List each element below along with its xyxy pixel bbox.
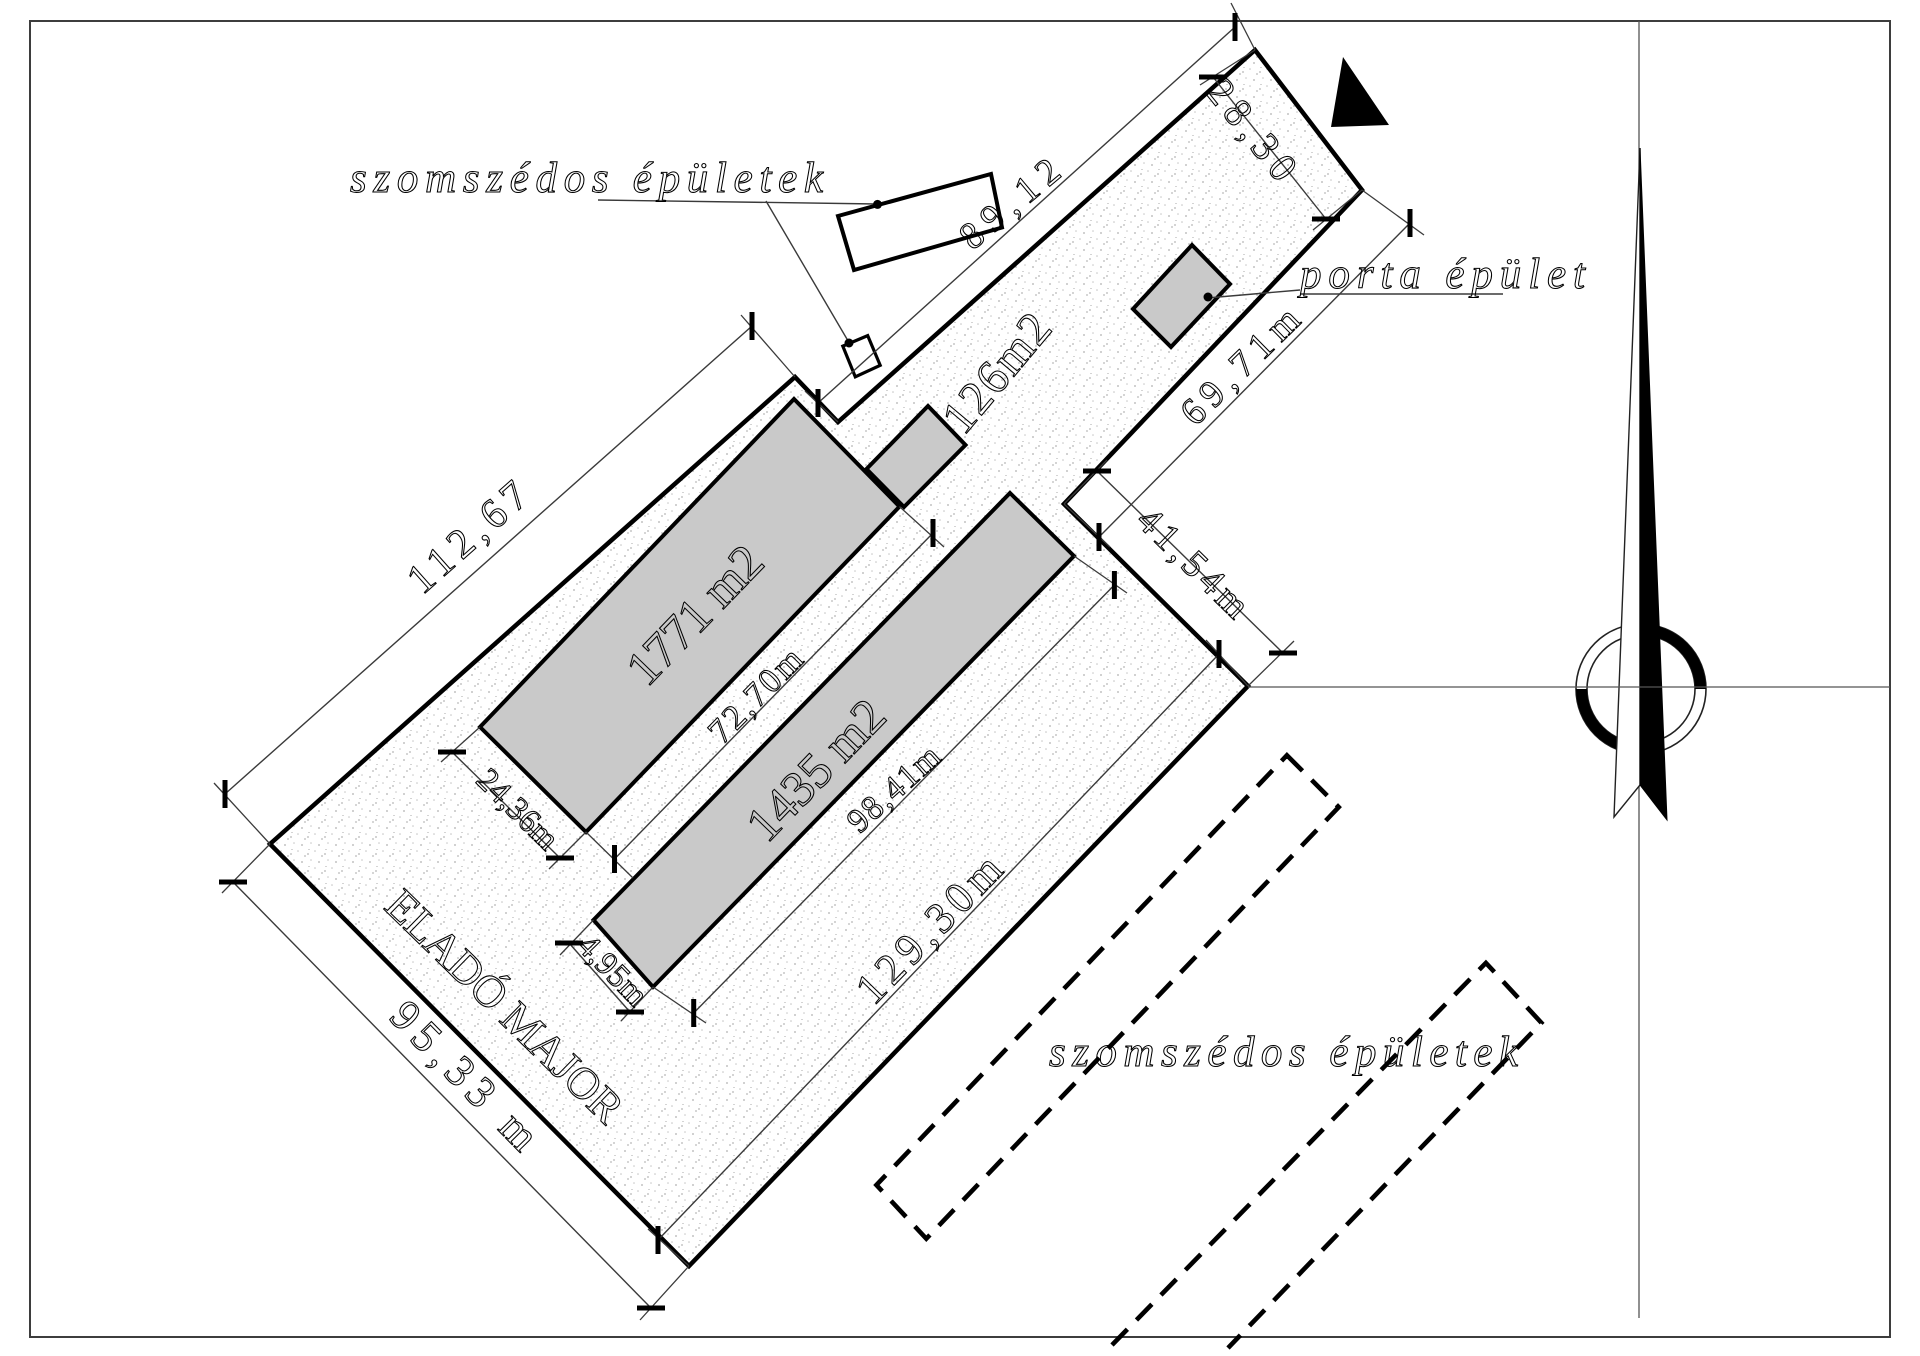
svg-text:112,67: 112,67 bbox=[399, 472, 538, 603]
svg-text:porta épület: porta épület bbox=[1297, 251, 1586, 298]
svg-text:szomszédos épületek: szomszédos épületek bbox=[350, 155, 824, 202]
